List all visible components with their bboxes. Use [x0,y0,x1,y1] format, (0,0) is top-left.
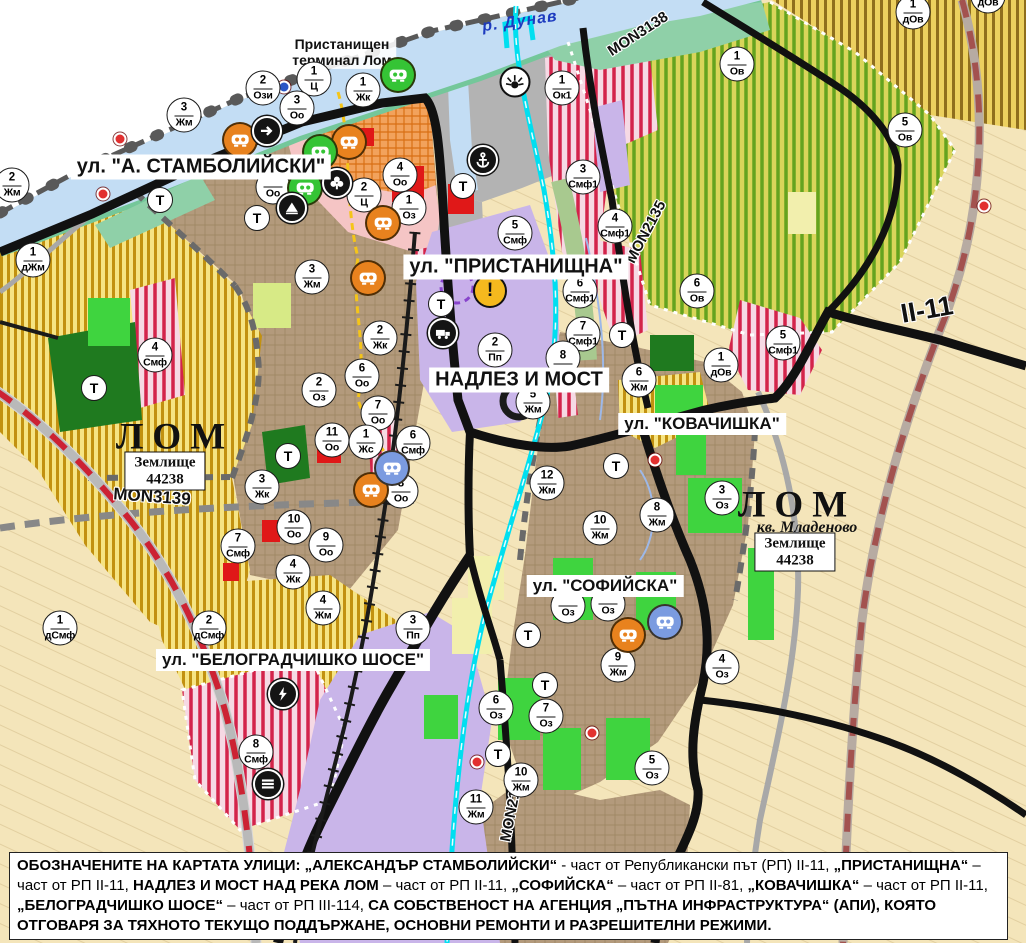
transport-marker: T [485,741,511,767]
transport-marker: T [450,173,476,199]
zone-marker-number: 2 [361,182,367,194]
transport-marker: T [275,443,301,469]
zone-marker-number: 3 [410,615,416,627]
zone-marker-code: Жм [631,383,648,394]
zone-marker-number: 10 [288,514,301,526]
zone-marker-number: 1 [559,75,565,87]
zone-marker-code: Оз [646,771,659,782]
zone-marker-code: Оо [319,548,333,559]
zone-marker: 2дСмф [192,611,227,646]
zone-marker-number: 7 [235,533,241,545]
transport-marker: T [81,375,107,401]
zone-marker-code: Оз [562,608,575,619]
caption-segment: – част от РП II-11, [859,877,987,894]
zone-marker-number: 1 [30,247,36,259]
caption-segment: НАДЛЕЗ И МОСТ НАД РЕКА ЛОМ [133,877,379,894]
zone-marker-number: 1 [910,0,916,11]
zone-marker-number: 6 [410,430,416,442]
map-caption: ОБОЗНАЧЕНИТЕ НА КАРТАТА УЛИЦИ: „АЛЕКСАНД… [9,852,1008,940]
zone-marker-code: Оо [290,111,304,122]
zone-marker-number: 4 [719,654,725,666]
zone-marker-number: 4 [320,595,326,607]
zone-marker-number: 12 [541,470,554,482]
zone-marker-number: 5 [512,220,518,232]
railway-icon [253,769,283,799]
sun-icon [500,67,531,98]
poi-dot [114,133,127,146]
zone-marker-code: Оз [716,670,729,681]
zone-marker-number: 2 [377,325,383,337]
zone-marker-code: дЖм [21,263,44,274]
zone-marker-code: Ов [730,67,744,78]
zone-marker-code: Жк [373,341,387,352]
zone-marker: 1Ов [720,47,755,82]
culture-mask-icon [350,260,386,296]
street-label: ул. "БЕЛОГРАДЧИШКО ШОСЕ" [156,649,430,671]
zone-marker-code: Ц [310,82,317,93]
zone-marker-code: Жм [592,531,609,542]
poi-dot [471,756,484,769]
zone-marker-number: 4 [612,213,618,225]
zone-marker: 4Жм [306,591,341,626]
caption-segment: „СОФИЙСКА“ [511,877,613,894]
zone-marker-number: 6 [359,363,365,375]
zone-marker: 1Ок1 [545,71,580,106]
zone-marker-number: 2 [206,615,212,627]
poi-dot [978,200,991,213]
zone-marker-number: 7 [375,400,381,412]
caption-segment: ОБОЗНАЧЕНИТЕ НА КАРТАТА УЛИЦИ: „АЛЕКСАНД… [17,857,557,874]
zone-marker-code: Ок1 [553,91,572,102]
zone-marker: 4Смф1 [598,209,633,244]
zone-marker: 6Ов [680,274,715,309]
zone-marker: 1Жс [349,425,384,460]
truck-icon [428,318,458,348]
poi-dot [97,188,110,201]
zone-marker-code: Жм [176,118,193,129]
zone-marker-number: 3 [309,264,315,276]
zone-marker-code: Оо [325,443,339,454]
zone-marker-code: дОв [903,15,924,26]
caption-segment: – част от РП II-81, [614,877,748,894]
zone-marker-code: Оз [716,501,729,512]
zone-marker-code: Жм [513,783,530,794]
zone-marker-number: 9 [615,652,621,664]
zone-marker-code: Жс [359,445,374,456]
caption-segment: – част от РП II-11, [379,877,512,894]
zone-marker-code: Ози [253,91,272,102]
zone-marker-code: Смф [143,358,167,369]
zone-marker: 6Жм [622,363,657,398]
zone-marker-number: 5 [649,755,655,767]
map-canvas: ул. "А. СТАМБОЛИЙСКИ"ул. "ПРИСТАНИЩНА"НА… [0,0,1026,943]
zone-marker-number: 1 [406,195,412,207]
street-label: НАДЛЕЗ И МОСТ [429,368,609,393]
zone-marker-number: 10 [594,515,607,527]
zone-marker: 1дОв [704,348,739,383]
zone-marker-number: 1 [57,615,63,627]
culture-mask-icon [365,205,401,241]
poi-dot [649,454,662,467]
zone-marker-number: 6 [577,278,583,290]
zone-marker-number: 6 [694,278,700,290]
culture-mask-icon [610,617,646,653]
street-label: ул. "А. СТАМБОЛИЙСКИ" [71,155,331,180]
transport-marker: T [428,291,454,317]
zone-marker-code: Оо [393,178,407,189]
zone-marker-number: 4 [397,162,403,174]
zone-marker-code: дСмф [194,631,224,642]
zone-marker-code: дОв [711,368,732,379]
zone-marker: 3Пп [396,611,431,646]
zone-marker-code: Смф1 [565,294,594,305]
zone-marker-code: Жк [356,93,370,104]
zone-marker-number: 9 [323,532,329,544]
zone-marker: 8Смф [239,735,274,770]
transport-marker: T [147,187,173,213]
zone-marker: 9Оо [309,528,344,563]
zone-marker-number: 8 [253,739,259,751]
caption-segment: „ПРИСТАНИЩНА“ [834,857,969,874]
zone-marker: 3Жк [245,470,280,505]
zone-marker: 11Жм [459,790,494,825]
zone-marker-code: Оо [394,494,408,505]
street-label: ул. "СОФИЙСКА" [527,575,684,597]
zone-marker-code: Жм [649,518,666,529]
zone-marker-number: 1 [311,66,317,78]
zone-marker-code: Ов [690,294,704,305]
zone-marker-number: 3 [580,164,586,176]
lightning-icon [268,679,298,709]
zone-marker-number: 11 [326,427,338,439]
zone-marker: 1Жк [346,73,381,108]
zone-marker: 4Смф [138,338,173,373]
transport-marker: T [515,622,541,648]
zone-marker: 2Оз [302,373,337,408]
zone-marker: 2Ози [246,71,281,106]
zone-marker-code: Жм [4,188,21,199]
zone-marker-code: Оо [371,416,385,427]
zone-marker-number: 1 [734,51,740,63]
transport-marker: T [609,322,635,348]
zone-marker: 1дЖм [16,243,51,278]
zone-marker: 5Ов [888,113,923,148]
zone-marker-number: 3 [259,474,265,486]
zone-marker-code: Смф [244,755,268,766]
zone-marker-number: 6 [636,367,642,379]
zone-marker: 3Жм [295,260,330,295]
zone-marker-number: 5 [902,117,908,129]
zone-marker-number: 3 [294,95,300,107]
zone-marker-number: 2 [260,75,266,87]
zone-marker: 4Оо [383,158,418,193]
zone-marker-code: Пп [488,353,502,364]
anchor-icon [468,145,498,175]
zone-marker-code: Смф [226,549,250,560]
zone-marker-number: 2 [9,172,15,184]
zone-marker: 7Оз [529,699,564,734]
zone-marker: 3Смф1 [566,160,601,195]
zone-marker-code: Оз [403,211,416,222]
zone-marker-code: Жм [304,280,321,291]
zone-marker: 4Оз [705,650,740,685]
zone-marker-code: Смф1 [768,346,797,357]
zone-marker: 12Жм [530,466,565,501]
zone-marker-code: Жк [286,575,300,586]
culture-mask-icon [380,57,416,93]
zone-marker: 7Смф [221,529,256,564]
zone-marker: 2Жк [363,321,398,356]
zone-marker-code: Оо [355,379,369,390]
zone-marker-number: 3 [719,485,725,497]
street-label: ул. "КОВАЧИШКА" [618,413,786,435]
zone-marker: 2Пп [478,333,513,368]
transport-marker: T [603,453,629,479]
zone-marker: 5Смф1 [766,326,801,361]
transport-marker: T [244,205,270,231]
mound-icon [277,193,307,223]
caption-segment: - част от Републикански път (РП) II-11, [557,857,833,874]
zone-marker-code: Ц [360,198,367,209]
zone-marker-number: 4 [152,342,158,354]
zone-marker: 10Жм [583,511,618,546]
culture-mask-icon [374,450,410,486]
landplot-label: Землище44238 [754,533,835,572]
zone-marker-number: 8 [654,502,660,514]
zone-marker-code: Смф1 [600,229,629,240]
zone-marker-number: 5 [780,330,786,342]
caption-segment: „КОВАЧИШКА“ [747,877,859,894]
culture-mask-icon [647,604,683,640]
zone-marker-number: 1 [360,77,366,89]
zone-marker: 6Оз [479,691,514,726]
zone-marker-code: Жм [539,486,556,497]
zone-marker-code: Жм [610,668,627,679]
zone-marker-code: Смф1 [568,180,597,191]
zone-marker: 1дСмф [43,611,78,646]
zone-marker-code: Оз [490,711,503,722]
transport-marker: T [532,672,558,698]
caption-segment: – част от РП III-114, [223,897,368,914]
zone-marker: 10Оо [277,510,312,545]
zone-marker-number: 6 [493,695,499,707]
zone-marker: 11Оо [315,423,350,458]
zone-marker-number: 7 [580,321,586,333]
zone-marker-number: 8 [560,350,566,362]
zone-marker-code: Оз [540,719,553,730]
zone-marker-number: 1 [718,352,724,364]
landplot-label: Землище44238 [124,452,205,491]
zone-marker-number: 1 [363,429,369,441]
zone-marker-code: Оз [313,393,326,404]
zone-marker: 5Смф [498,216,533,251]
zone-marker-number: 3 [181,102,187,114]
arrow-icon [252,116,282,146]
zone-marker-code: Жм [525,405,542,416]
zone-marker-code: Жк [255,490,269,501]
zone-marker: 3Оз [705,481,740,516]
caption-segment: „БЕЛОГРАДЧИШКО ШОСЕ“ [17,897,223,914]
zone-marker: 5Оз [635,751,670,786]
zone-marker-code: Ов [898,133,912,144]
zone-marker-number: 7 [543,703,549,715]
zone-marker: 4Жк [276,555,311,590]
zone-marker-code: Жм [315,611,332,622]
zone-marker: 10Жм [504,763,539,798]
zone-marker-code: Смф [503,236,527,247]
zone-marker: 8Жм [640,498,675,533]
zone-marker-number: 2 [492,337,498,349]
zone-marker: 6Оо [345,359,380,394]
zone-marker-code: Пп [406,631,420,642]
zone-marker: 3Оо [280,91,315,126]
zone-marker-code: Оо [266,189,280,200]
zone-marker-code: дОв [978,0,999,8]
zone-marker-code: дСмф [45,631,75,642]
zone-marker: 3Жм [167,98,202,133]
street-label: ул. "ПРИСТАНИЩНА" [403,255,628,280]
poi-dot [586,727,599,740]
zone-marker-number: 2 [316,377,322,389]
zone-marker-code: Оз [602,606,615,617]
zone-marker-number: 11 [470,794,482,806]
zone-marker-number: 10 [515,767,528,779]
zone-marker-code: Жм [468,810,485,821]
zone-marker-code: Оо [287,530,301,541]
zone-marker-number: 4 [290,559,296,571]
